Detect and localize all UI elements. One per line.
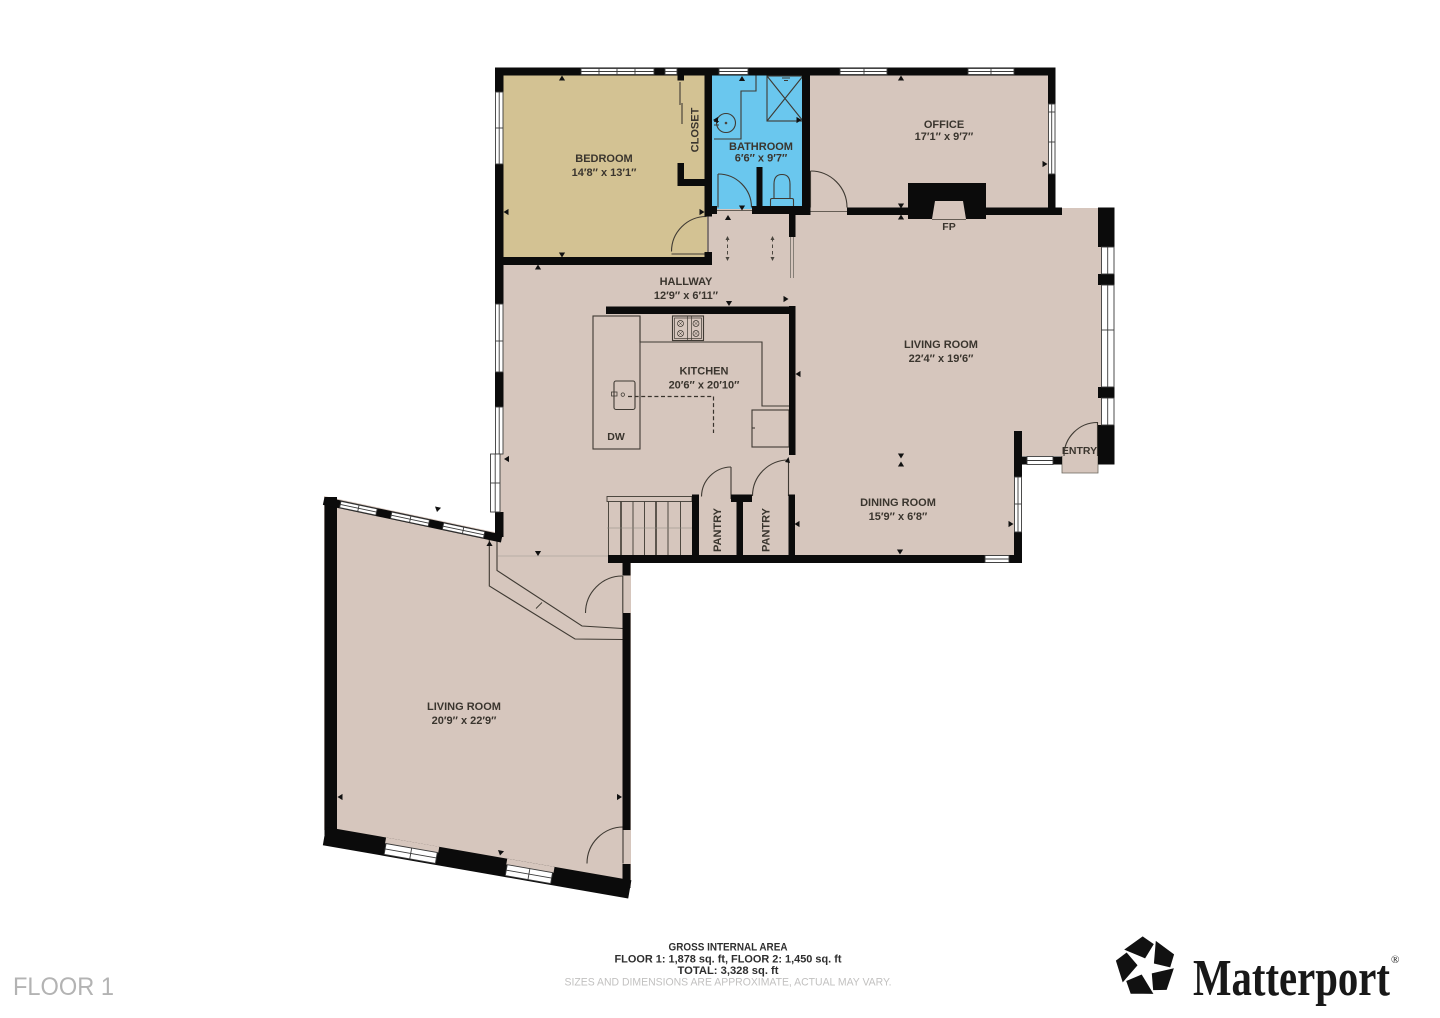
svg-text:TOTAL: 3,328 sq. ft: TOTAL: 3,328 sq. ft bbox=[678, 965, 779, 977]
svg-text:GROSS INTERNAL AREA: GROSS INTERNAL AREA bbox=[669, 942, 788, 954]
svg-text:CLOSET: CLOSET bbox=[690, 107, 702, 152]
svg-text:HALLWAY: HALLWAY bbox=[660, 276, 713, 288]
svg-text:FLOOR 1: FLOOR 1 bbox=[13, 973, 114, 1001]
svg-text:DINING ROOM: DINING ROOM bbox=[860, 497, 936, 509]
svg-text:17′1″ x 9′7″: 17′1″ x 9′7″ bbox=[915, 131, 974, 143]
svg-text:LIVING ROOM: LIVING ROOM bbox=[427, 701, 501, 713]
svg-text:®: ® bbox=[1391, 954, 1399, 966]
svg-text:BEDROOM: BEDROOM bbox=[575, 153, 632, 165]
svg-text:22′4″ x 19′6″: 22′4″ x 19′6″ bbox=[909, 353, 974, 365]
svg-text:12′9″ x 6′11″: 12′9″ x 6′11″ bbox=[654, 290, 719, 302]
svg-text:SIZES AND DIMENSIONS ARE APPRO: SIZES AND DIMENSIONS ARE APPROXIMATE, AC… bbox=[565, 977, 892, 989]
svg-text:FP: FP bbox=[942, 221, 955, 233]
svg-text:PANTRY: PANTRY bbox=[712, 507, 724, 552]
svg-text:DW: DW bbox=[607, 431, 625, 443]
svg-text:6′6″ x 9′7″: 6′6″ x 9′7″ bbox=[735, 153, 788, 165]
svg-text:KITCHEN: KITCHEN bbox=[680, 366, 729, 378]
svg-text:20′9″ x 22′9″: 20′9″ x 22′9″ bbox=[432, 715, 497, 727]
svg-text:PANTRY: PANTRY bbox=[761, 507, 773, 552]
svg-text:20′6″ x 20′10″: 20′6″ x 20′10″ bbox=[669, 380, 741, 392]
svg-text:FLOOR 1: 1,878 sq. ft, FLOOR 2: FLOOR 1: 1,878 sq. ft, FLOOR 2: 1,450 sq… bbox=[615, 954, 842, 966]
svg-text:Matterport: Matterport bbox=[1193, 950, 1391, 1007]
svg-text:BATHROOM: BATHROOM bbox=[729, 141, 793, 153]
svg-text:OFFICE: OFFICE bbox=[924, 119, 964, 131]
svg-text:LIVING ROOM: LIVING ROOM bbox=[904, 339, 978, 351]
svg-text:ENTRY: ENTRY bbox=[1062, 445, 1097, 457]
svg-text:15′9″ x 6′8″: 15′9″ x 6′8″ bbox=[869, 511, 928, 523]
svg-text:14′8″ x 13′1″: 14′8″ x 13′1″ bbox=[572, 167, 637, 179]
